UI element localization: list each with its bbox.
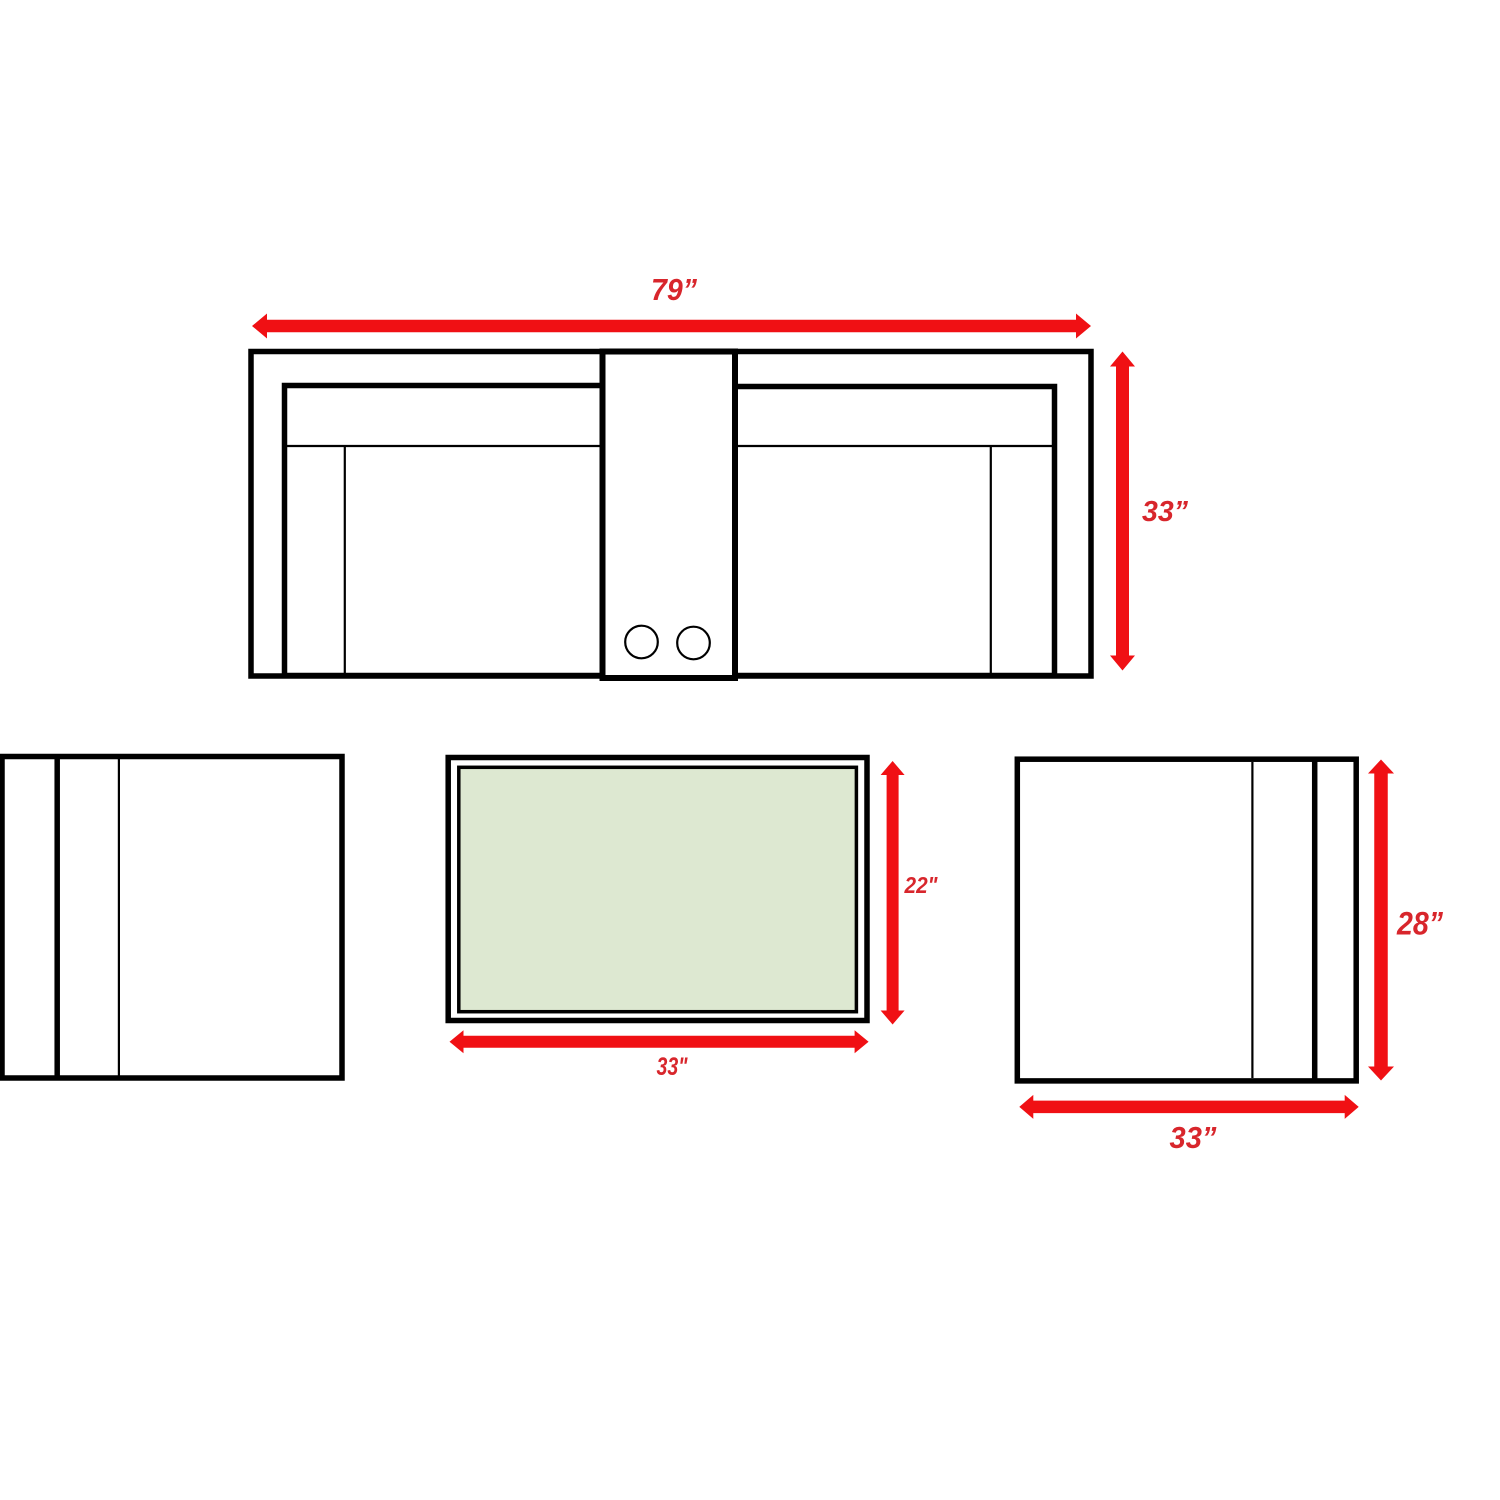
svg-text:33”: 33” — [1170, 1120, 1217, 1155]
svg-text:33": 33" — [657, 1053, 689, 1081]
svg-text:28”: 28” — [1396, 906, 1443, 942]
svg-text:22": 22" — [904, 872, 939, 898]
svg-text:79”: 79” — [651, 272, 697, 307]
svg-text:33”: 33” — [1142, 496, 1188, 528]
